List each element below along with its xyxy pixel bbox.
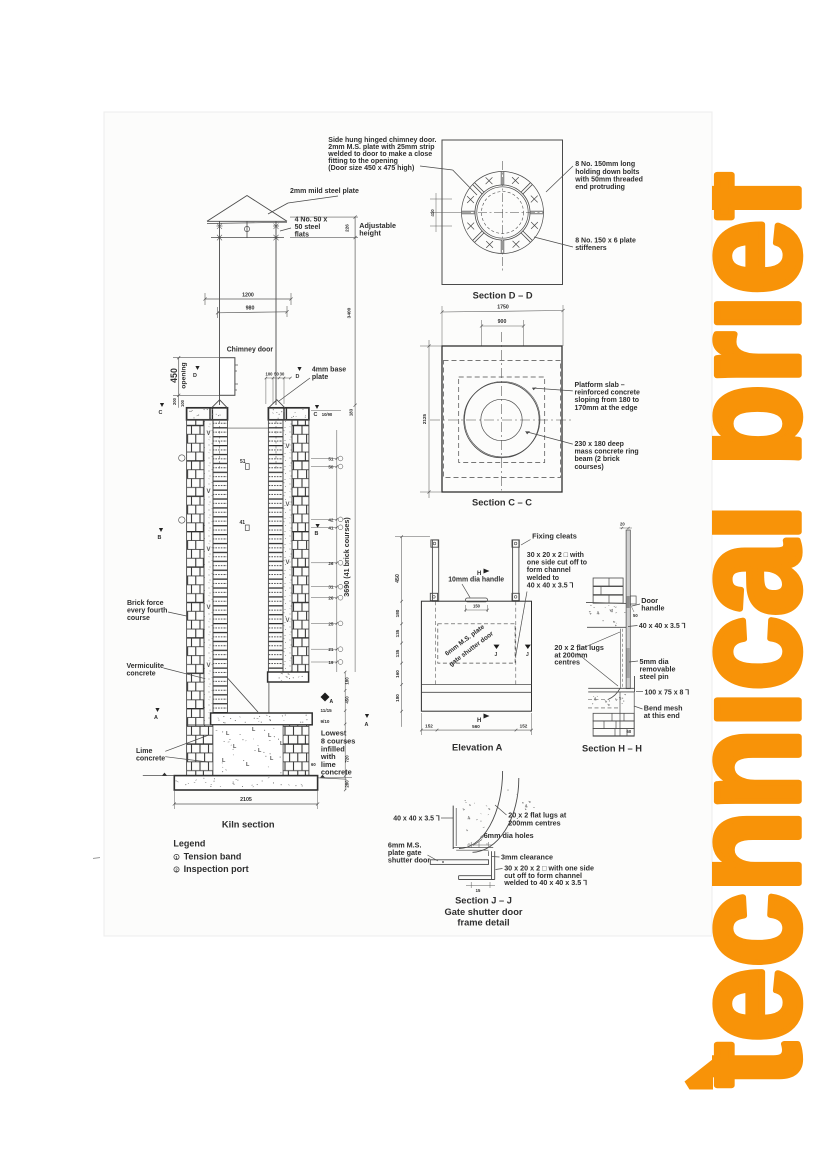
svg-text:3mm clearance: 3mm clearance [501, 853, 553, 862]
svg-text:1750: 1750 [497, 305, 509, 311]
svg-text:9/10: 9/10 [321, 719, 330, 724]
svg-text:J: J [495, 652, 498, 658]
svg-text:50 steel: 50 steel [295, 224, 321, 231]
svg-text:4 No. 50 x: 4 No. 50 x [295, 217, 328, 224]
svg-text:handle: handle [641, 604, 664, 613]
svg-text:4mm base: 4mm base [312, 367, 346, 374]
svg-text:Tension band: Tension band [184, 852, 242, 862]
svg-text:C: C [314, 412, 318, 418]
svg-text:A: A [154, 715, 158, 721]
svg-text:280: 280 [345, 780, 350, 788]
svg-text:41: 41 [328, 525, 334, 530]
svg-text:40 x 40 x 3.5 ⅂: 40 x 40 x 3.5 ⅂ [639, 622, 686, 630]
svg-text:2105: 2105 [240, 797, 252, 803]
svg-text:V: V [206, 663, 210, 669]
svg-text:10mm dia handle: 10mm dia handle [448, 577, 504, 584]
svg-text:31: 31 [328, 585, 334, 590]
svg-text:A: A [330, 699, 334, 705]
svg-text:226: 226 [345, 224, 350, 232]
svg-text:Section H – H: Section H – H [582, 743, 642, 753]
svg-text:height: height [359, 229, 381, 238]
svg-text:concrete: concrete [321, 768, 352, 777]
svg-text:C: C [159, 410, 163, 416]
svg-text:B: B [158, 535, 162, 541]
svg-text:170mm at the edge: 170mm at the edge [575, 405, 638, 412]
svg-text:21: 21 [328, 647, 334, 652]
svg-text:end protruding: end protruding [575, 184, 625, 191]
svg-text:450: 450 [169, 368, 179, 383]
svg-text:25: 25 [328, 621, 334, 626]
svg-text:11/15: 11/15 [321, 708, 333, 713]
svg-text:900: 900 [498, 319, 507, 325]
svg-text:one side cut off to: one side cut off to [527, 560, 587, 567]
svg-text:V: V [285, 560, 289, 566]
svg-text:(Door size 450 x 475 high): (Door size 450 x 475 high) [328, 165, 414, 172]
svg-text:Inspection port: Inspection port [184, 864, 249, 874]
svg-text:mass concrete ring: mass concrete ring [575, 449, 639, 456]
svg-text:2mm M.S. plate with 25mm strip: 2mm M.S. plate with 25mm strip [328, 144, 434, 151]
svg-text:fitting to the opening: fitting to the opening [328, 158, 398, 165]
svg-text:Chimney door: Chimney door [227, 347, 274, 354]
svg-text:135: 135 [395, 629, 400, 637]
svg-text:Platform slab –: Platform slab – [575, 382, 625, 389]
svg-text:V: V [285, 502, 289, 508]
svg-text:J: J [526, 652, 529, 658]
svg-text:410: 410 [430, 209, 435, 217]
svg-text:courses): courses) [575, 464, 604, 471]
svg-text:30 x 20 x 2 □ with: 30 x 20 x 2 □ with [527, 552, 584, 559]
svg-text:50: 50 [328, 465, 334, 470]
svg-text:every fourth: every fourth [127, 608, 167, 615]
svg-text:100: 100 [180, 399, 185, 407]
svg-text:plate: plate [312, 374, 328, 381]
svg-text:beam (2 brick: beam (2 brick [575, 456, 620, 463]
svg-text:holding down bolts: holding down bolts [575, 169, 639, 176]
svg-text:centres: centres [554, 658, 580, 667]
svg-text:19: 19 [328, 660, 334, 665]
svg-text:Lime: Lime [136, 748, 152, 755]
svg-text:180: 180 [395, 694, 400, 702]
svg-text:230 x 180 deep: 230 x 180 deep [575, 441, 624, 448]
svg-text:V: V [206, 431, 210, 437]
svg-text:51: 51 [240, 459, 246, 465]
svg-text:welded to 40 x 40 x 3.5 ⅂: welded to 40 x 40 x 3.5 ⅂ [503, 878, 587, 887]
svg-text:Kiln section: Kiln section [222, 820, 275, 830]
svg-text:form channel: form channel [527, 567, 571, 574]
svg-text:course: course [127, 615, 150, 622]
svg-text:Vermiculite: Vermiculite [127, 663, 164, 670]
svg-text:183: 183 [349, 408, 354, 416]
svg-text:10/90: 10/90 [322, 412, 333, 417]
svg-text:200mm centres: 200mm centres [508, 818, 560, 827]
svg-text:3400: 3400 [347, 307, 353, 318]
svg-text:560: 560 [472, 724, 480, 729]
svg-text:135: 135 [395, 649, 400, 657]
svg-text:51: 51 [328, 457, 334, 462]
svg-text:180: 180 [395, 609, 400, 617]
svg-text:A: A [365, 722, 369, 728]
svg-text:40 x 40 x 3.5 ⅂: 40 x 40 x 3.5 ⅂ [393, 815, 440, 823]
svg-text:Elevation A: Elevation A [452, 743, 503, 753]
svg-text:3690 (41 brick courses): 3690 (41 brick courses) [342, 517, 351, 597]
svg-text:Fixing cleats: Fixing cleats [532, 532, 577, 541]
svg-text:H: H [477, 571, 481, 577]
svg-text:15: 15 [476, 888, 481, 893]
svg-text:720: 720 [345, 755, 350, 763]
svg-text:opening: opening [181, 362, 188, 388]
svg-text:60: 60 [627, 729, 632, 734]
svg-text:D: D [193, 373, 197, 379]
svg-text:Brick force: Brick force [127, 600, 164, 607]
svg-text:reinforced concrete: reinforced concrete [575, 390, 640, 397]
svg-text:welded to door to make a close: welded to door to make a close [327, 151, 432, 158]
svg-text:V: V [206, 489, 210, 495]
svg-text:180: 180 [345, 677, 350, 685]
svg-text:Section D – D: Section D – D [473, 291, 533, 301]
svg-text:Section J – J: Section J – J [455, 896, 512, 906]
svg-text:42: 42 [328, 517, 334, 522]
svg-text:50: 50 [633, 613, 638, 618]
svg-text:with 50mm threaded: with 50mm threaded [574, 176, 643, 183]
svg-text:40 x 40 x 3.5 ⅂: 40 x 40 x 3.5 ⅂ [527, 581, 574, 589]
svg-text:shutter door: shutter door [388, 856, 431, 865]
svg-text:100 x 75 x 8 ⅂: 100 x 75 x 8 ⅂ [645, 688, 690, 696]
svg-text:welded to: welded to [526, 575, 559, 582]
svg-text:41: 41 [240, 520, 246, 526]
svg-text:frame detail: frame detail [457, 917, 509, 927]
svg-text:60: 60 [311, 762, 316, 767]
svg-text:V: V [285, 444, 289, 450]
svg-text:Legend: Legend [173, 839, 205, 849]
svg-text:26: 26 [328, 596, 334, 601]
svg-text:concrete: concrete [127, 671, 156, 678]
svg-text:450: 450 [345, 696, 350, 704]
svg-text:sloping from 180 to: sloping from 180 to [575, 397, 640, 404]
svg-text:Section C – C: Section C – C [472, 498, 532, 508]
svg-text:30: 30 [280, 372, 285, 377]
svg-text:Side hung hinged chimney door.: Side hung hinged chimney door. [328, 137, 436, 144]
svg-text:V: V [285, 618, 289, 624]
svg-text:2125: 2125 [422, 413, 427, 424]
svg-text:980: 980 [246, 306, 255, 312]
svg-text:100: 100 [266, 372, 274, 377]
svg-text:6mm dia holes: 6mm dia holes [484, 831, 534, 840]
svg-text:steel pin: steel pin [640, 672, 669, 681]
svg-text:stiffeners: stiffeners [575, 245, 607, 252]
svg-text:152: 152 [425, 724, 433, 729]
svg-text:concrete: concrete [136, 756, 165, 763]
svg-text:D: D [296, 374, 300, 380]
svg-text:160: 160 [395, 670, 400, 678]
svg-text:152: 152 [520, 724, 528, 729]
svg-text:1200: 1200 [242, 293, 254, 299]
svg-text:8 No. 150 x 6 plate: 8 No. 150 x 6 plate [575, 238, 636, 245]
svg-text:V: V [206, 547, 210, 553]
svg-text:2mm mild steel plate: 2mm mild steel plate [290, 188, 359, 195]
svg-text:at this end: at this end [644, 711, 680, 720]
svg-text:150: 150 [473, 604, 481, 609]
svg-text:8 No. 150mm long: 8 No. 150mm long [575, 161, 635, 168]
svg-text:V: V [206, 605, 210, 611]
svg-text:Gate shutter door: Gate shutter door [445, 907, 523, 917]
svg-text:20: 20 [620, 522, 625, 527]
svg-text:B: B [315, 531, 319, 537]
svg-text:450: 450 [395, 574, 401, 583]
svg-text:200: 200 [172, 397, 177, 405]
svg-text:26: 26 [328, 561, 334, 566]
